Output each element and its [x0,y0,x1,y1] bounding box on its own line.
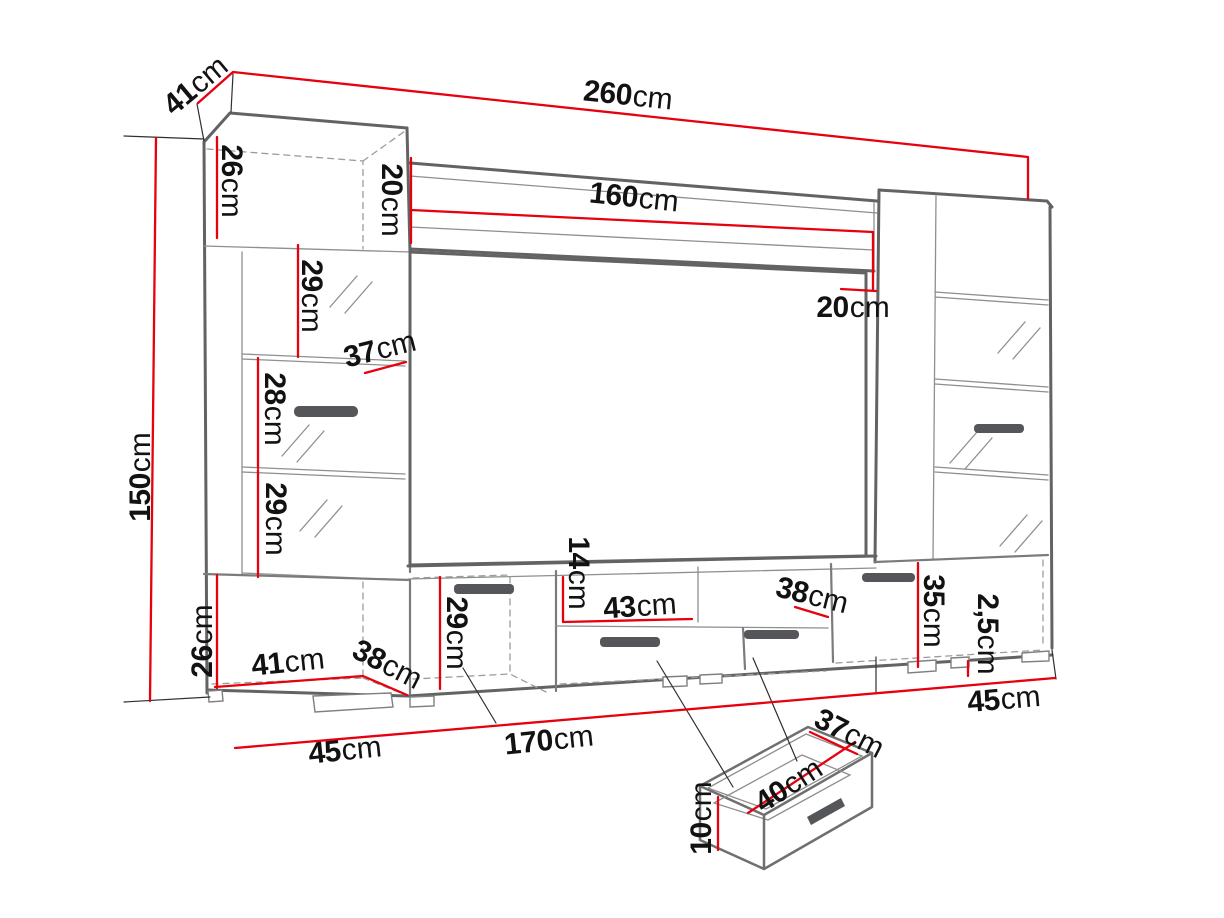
dimension-label-plinth-height-2-5: 2,5cm [972,593,1002,674]
dimension-unit: cm [215,178,248,218]
dimension-unit: cm [685,781,718,821]
dimension-unit: cm [186,604,219,644]
dimension-label-niche-width-43: 43cm [602,589,677,624]
dimension-value: 20 [375,163,408,195]
dimension-unit: cm [850,291,890,324]
dimension-label-top-cabinet-height-26: 26cm [216,144,246,217]
dimension-unit: cm [283,642,326,679]
dimension-value: 150 [124,473,157,522]
dimension-label-total-height-150: 150cm [126,432,156,522]
dimension-value: 2,5 [971,593,1004,633]
dimension-value: 26 [215,144,248,176]
dimension-value: 45 [966,683,1001,719]
dimension-value: 10 [685,822,718,854]
dimension-unit: cm [295,293,328,333]
door-handle [294,406,358,417]
dimension-value: 260 [582,74,634,112]
dimension-unit: cm [258,406,291,446]
door-handle [454,584,514,594]
dimension-label-left-middle-shelf-28: 28cm [259,372,289,445]
dimension-value: 160 [588,176,640,214]
dimension-value: 43 [602,590,637,625]
dimension-label-floor-depth-right-45: 45cm [966,682,1042,718]
glass-reflection [950,322,1042,552]
dimension-unit: cm [375,197,408,237]
dimension-unit: cm [124,432,157,472]
dimension-label-left-upper-shelf-29: 29cm [296,259,326,332]
drawer-handle [600,637,660,647]
door-handle [974,424,1024,433]
dimension-unit: cm [562,570,595,610]
dimension-label-shelf-drop-left-20: 20cm [376,163,406,236]
dimension-unit: cm [552,719,595,756]
diagram-canvas [0,0,1224,918]
dimension-label-shelf-end-height-20: 20cm [816,293,889,323]
dimension-value: 14 [562,536,595,568]
dimension-unit: cm [971,635,1004,675]
dimension-value: 26 [186,645,219,677]
dimension-label-niche-height-14: 14cm [563,536,593,609]
dimension-value: 20 [816,291,848,324]
tv-back-panel [410,252,866,565]
dimension-label-drawer-height-10: 10cm [687,781,717,854]
dimension-value: 28 [258,372,291,404]
drawer-handle [744,630,799,639]
dimension-unit: cm [340,730,383,767]
dimension-unit: cm [637,182,680,219]
furniture-dimension-diagram: 41cm260cm26cm20cm160cm20cm29cm37cm28cm29… [0,0,1224,918]
dimension-label-base-left-width-41: 41cm [250,644,326,682]
dimension-unit: cm [999,680,1042,716]
dimension-label-base-right-height-35: 35cm [918,574,948,647]
dimension-unit: cm [917,608,950,648]
dimension-unit: cm [631,80,674,117]
dimension-value: 29 [295,259,328,291]
dimension-value: 41 [250,647,286,683]
dimension-label-floor-depth-left-45: 45cm [307,732,383,770]
dimension-value: 35 [917,574,950,606]
dimension-unit: cm [440,630,473,670]
dimension-label-tv-stand-height-29: 29cm [441,596,471,669]
dimension-value: 29 [440,596,473,628]
dimension-label-base-left-height-26: 26cm [188,604,218,677]
dimension-unit: cm [636,587,678,623]
dimension-value: 29 [259,482,292,514]
drawer-handle [807,798,845,825]
dimension-value: 45 [307,735,343,771]
dimension-value: 170 [503,724,555,762]
dimension-label-left-lower-shelf-29: 29cm [260,482,290,555]
door-handle [862,573,915,582]
dimension-unit: cm [259,516,292,556]
